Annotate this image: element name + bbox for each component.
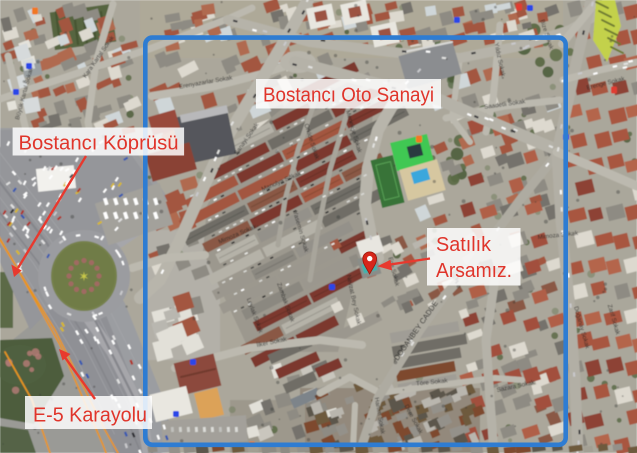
svg-text:Arsamız.: Arsamız.: [436, 260, 512, 282]
svg-text:Satılık: Satılık: [436, 234, 492, 256]
svg-text:Bostancı Köprüsü: Bostancı Köprüsü: [19, 133, 179, 155]
svg-text:Bostancı Oto Sanayi: Bostancı Oto Sanayi: [263, 85, 434, 107]
svg-text:✶: ✶: [79, 269, 90, 284]
svg-text:E-5 Karayolu: E-5 Karayolu: [33, 405, 147, 427]
